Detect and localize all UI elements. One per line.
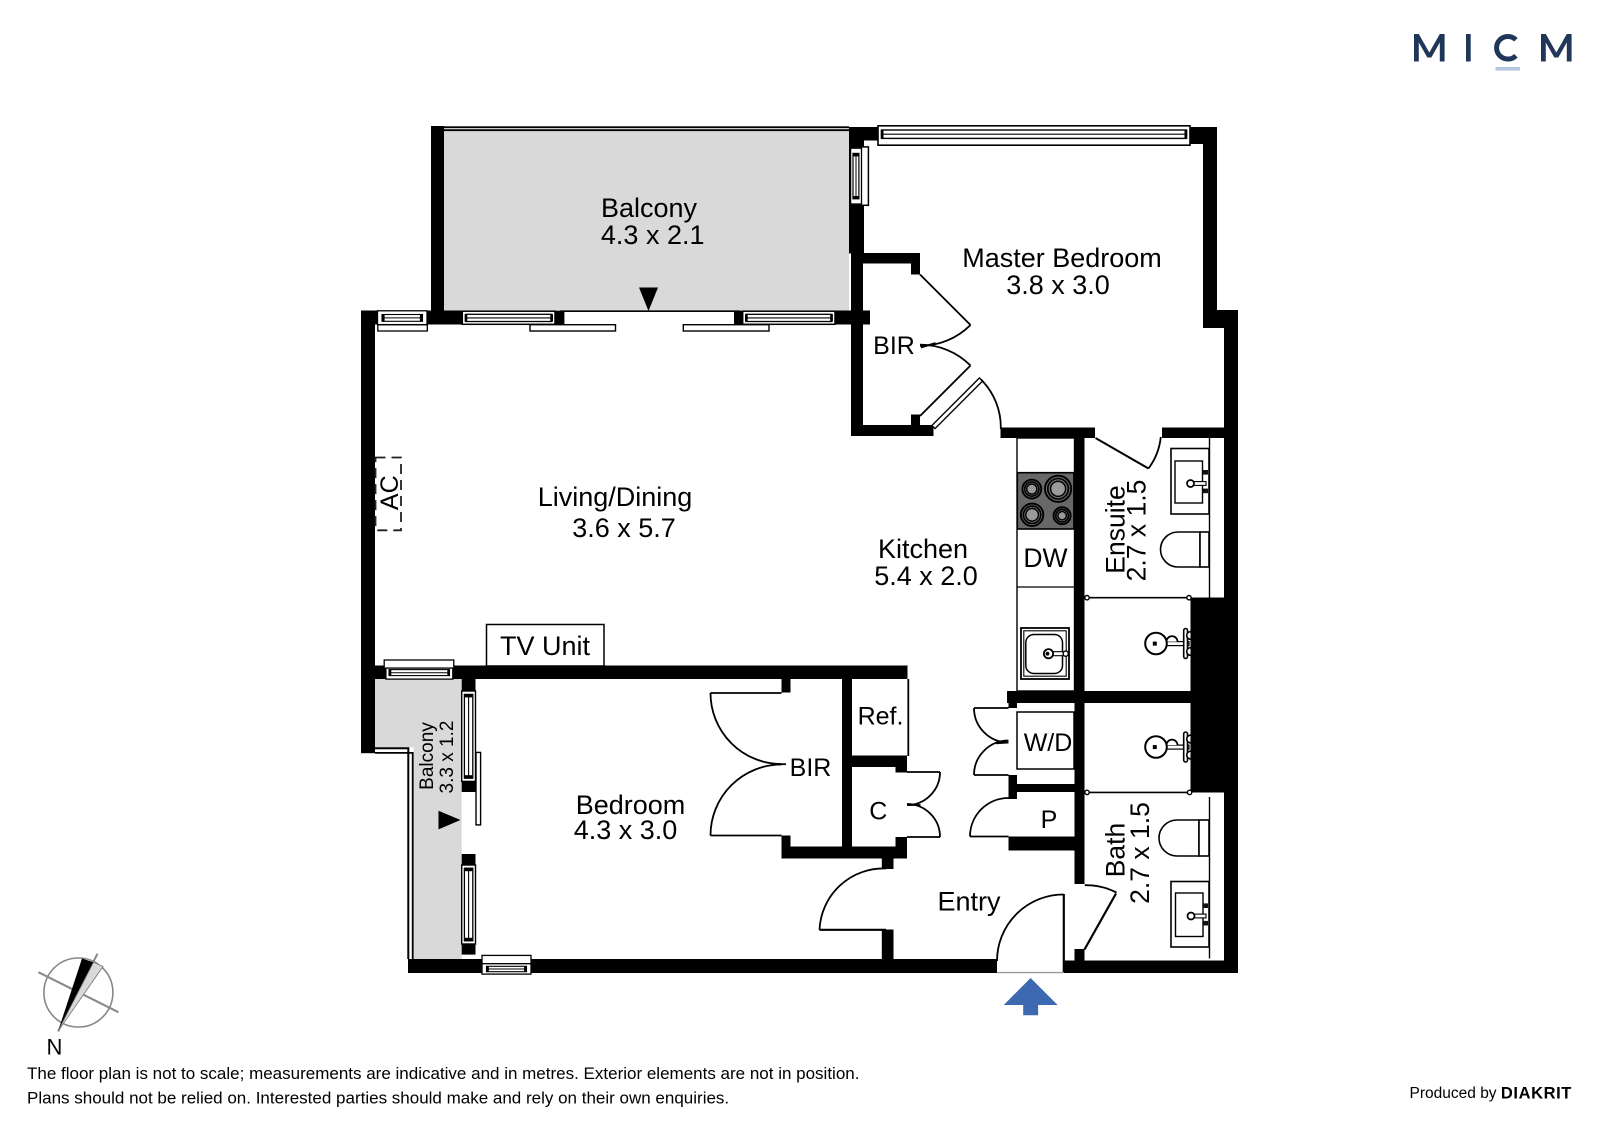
svg-text:Balcony: Balcony <box>601 193 698 223</box>
svg-text:C: C <box>869 798 887 826</box>
svg-text:4.3 x 2.1: 4.3 x 2.1 <box>601 220 705 250</box>
svg-text:Produced by DIAKRIT: Produced by DIAKRIT <box>1410 1085 1572 1103</box>
svg-text:BIR: BIR <box>873 332 915 360</box>
svg-text:TV Unit: TV Unit <box>500 631 591 661</box>
svg-text:Entry: Entry <box>937 887 1001 917</box>
svg-text:Master Bedroom: Master Bedroom <box>962 243 1162 273</box>
svg-text:Ref.: Ref. <box>858 703 904 731</box>
svg-text:P: P <box>1041 806 1058 834</box>
svg-text:4.3 x 3.0: 4.3 x 3.0 <box>574 815 678 845</box>
svg-text:Living/Dining: Living/Dining <box>538 482 693 512</box>
svg-text:3.3 x 1.2: 3.3 x 1.2 <box>437 721 458 794</box>
svg-text:W/D: W/D <box>1024 729 1073 757</box>
svg-text:AC: AC <box>376 475 404 510</box>
svg-text:BIR: BIR <box>790 754 832 782</box>
svg-text:Balcony: Balcony <box>417 722 438 790</box>
svg-text:5.4 x 2.0: 5.4 x 2.0 <box>874 561 978 591</box>
svg-text:Kitchen: Kitchen <box>878 534 968 564</box>
svg-text:DW: DW <box>1023 543 1067 573</box>
svg-text:2.7 x 1.5: 2.7 x 1.5 <box>1122 480 1152 582</box>
svg-text:3.6 x 5.7: 3.6 x 5.7 <box>572 513 676 543</box>
svg-text:2.7 x 1.5: 2.7 x 1.5 <box>1125 802 1155 904</box>
svg-text:3.8 x 3.0: 3.8 x 3.0 <box>1006 270 1110 300</box>
svg-text:N: N <box>47 1035 63 1060</box>
svg-text:The floor plan is not to scale: The floor plan is not to scale; measurem… <box>27 1064 859 1083</box>
svg-text:Plans should not be relied on.: Plans should not be relied on. Intereste… <box>27 1088 729 1107</box>
